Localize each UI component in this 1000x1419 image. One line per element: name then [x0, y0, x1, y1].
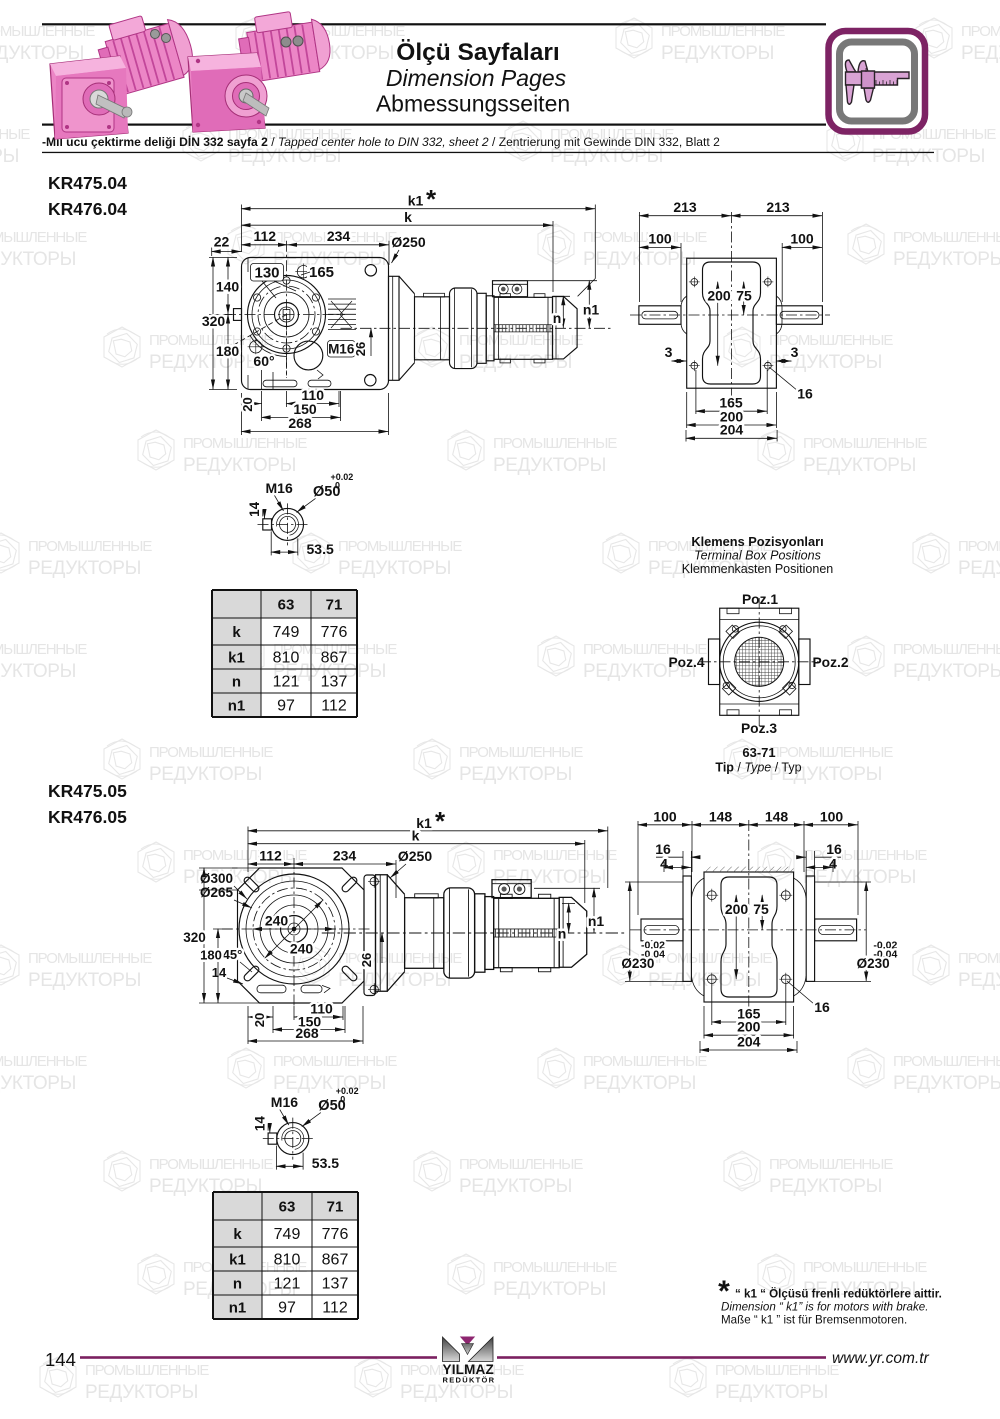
- svg-text:n: n: [558, 926, 567, 942]
- svg-text:*: *: [435, 806, 446, 836]
- svg-text:180: 180: [200, 948, 222, 963]
- svg-text:63-71: 63-71: [742, 745, 775, 760]
- svg-text:140: 140: [216, 278, 240, 294]
- svg-text:20: 20: [252, 1013, 267, 1027]
- svg-text:60°: 60°: [253, 353, 274, 369]
- svg-text:n1: n1: [583, 302, 600, 318]
- svg-text:20: 20: [240, 397, 255, 411]
- svg-text:144: 144: [45, 1349, 76, 1370]
- svg-text:320: 320: [183, 930, 206, 945]
- svg-text:Poz.1: Poz.1: [742, 592, 778, 607]
- svg-text:213: 213: [766, 199, 790, 215]
- svg-text:*: *: [426, 184, 437, 214]
- svg-text:Poz.3: Poz.3: [741, 721, 777, 736]
- svg-text:Maße “ k1 ” ist für Bremsenmot: Maße “ k1 ” ist für Bremsenmotoren.: [721, 1314, 907, 1327]
- svg-text:148: 148: [709, 809, 733, 825]
- svg-text:Abmessungsseiten: Abmessungsseiten: [376, 91, 570, 117]
- svg-text:Tip / Type / Typ: Tip / Type / Typ: [715, 761, 801, 775]
- svg-text:234: 234: [333, 848, 357, 864]
- svg-text:n: n: [553, 310, 562, 326]
- svg-text:“ k1 “ Ölçüsü frenli redüktörl: “ k1 “ Ölçüsü frenli redüktörlere aittir…: [735, 1288, 942, 1301]
- svg-text:16: 16: [797, 386, 813, 402]
- svg-text:Terminal Box Positions: Terminal Box Positions: [694, 549, 821, 563]
- svg-text:130: 130: [254, 265, 279, 282]
- svg-text:Ø230: Ø230: [857, 956, 890, 971]
- svg-text:112: 112: [259, 848, 282, 864]
- svg-text:3: 3: [665, 344, 673, 360]
- svg-text:k: k: [412, 828, 420, 844]
- svg-text:100: 100: [648, 231, 672, 247]
- svg-text:100: 100: [790, 231, 814, 247]
- svg-text:14: 14: [212, 965, 227, 980]
- svg-text:148: 148: [765, 809, 789, 825]
- svg-text:320: 320: [202, 313, 226, 329]
- svg-text:75: 75: [753, 901, 769, 917]
- svg-text:3: 3: [791, 344, 799, 360]
- svg-text:204: 204: [737, 1033, 761, 1049]
- svg-text:16: 16: [814, 999, 830, 1015]
- svg-text:Ø300: Ø300: [200, 871, 233, 886]
- svg-text:165: 165: [309, 264, 334, 281]
- svg-text:234: 234: [327, 228, 351, 244]
- svg-text:Klemmenkasten Positionen: Klemmenkasten Positionen: [682, 562, 834, 576]
- svg-text:www.yr.com.tr: www.yr.com.tr: [832, 1350, 930, 1367]
- svg-text:200: 200: [737, 1019, 761, 1035]
- svg-text:KR475.05: KR475.05: [48, 781, 127, 801]
- svg-text:KR476.04: KR476.04: [48, 199, 127, 219]
- svg-text:n1: n1: [588, 913, 605, 929]
- svg-text:REDÜKTÖR: REDÜKTÖR: [443, 1376, 496, 1385]
- svg-text:Ø230: Ø230: [621, 956, 654, 971]
- svg-text:Dimension Pages: Dimension Pages: [386, 65, 567, 91]
- svg-text:k1: k1: [408, 193, 424, 209]
- svg-text:Poz.2: Poz.2: [812, 655, 848, 670]
- svg-text:75: 75: [736, 288, 752, 304]
- svg-text:180: 180: [216, 343, 240, 359]
- svg-text:240: 240: [290, 941, 314, 957]
- svg-text:-Mil ucu çektirme deliği DİN 3: -Mil ucu çektirme deliği DİN 332 sayfa 2…: [42, 134, 720, 149]
- svg-text:26: 26: [353, 342, 368, 356]
- svg-text:112: 112: [254, 228, 277, 244]
- svg-text:Klemens Pozisyonları: Klemens Pozisyonları: [691, 534, 823, 549]
- svg-text:Ø250: Ø250: [398, 848, 432, 864]
- svg-text:26: 26: [359, 953, 374, 967]
- svg-text:Poz.4: Poz.4: [668, 655, 704, 670]
- svg-text:M16: M16: [328, 342, 355, 357]
- svg-text:200: 200: [707, 288, 731, 304]
- svg-text:200: 200: [725, 901, 749, 917]
- svg-text:Ölçü Sayfaları: Ölçü Sayfaları: [396, 39, 559, 66]
- svg-text:268: 268: [288, 415, 312, 431]
- svg-text:100: 100: [820, 809, 844, 825]
- svg-text:KR475.04: KR475.04: [48, 173, 127, 193]
- svg-text:Dimension “ k1” is for motors: Dimension “ k1” is for motors with brake…: [721, 1301, 928, 1314]
- svg-text:100: 100: [653, 809, 677, 825]
- svg-text:Ø265: Ø265: [200, 885, 234, 900]
- svg-text:213: 213: [673, 199, 697, 215]
- svg-text:240: 240: [265, 913, 289, 929]
- svg-text:268: 268: [295, 1025, 319, 1041]
- svg-text:22: 22: [214, 234, 230, 250]
- svg-text:45°: 45°: [223, 947, 243, 962]
- svg-text:Ø250: Ø250: [391, 234, 425, 250]
- svg-text:k: k: [404, 209, 412, 225]
- svg-text:204: 204: [720, 422, 744, 438]
- svg-text:KR476.05: KR476.05: [48, 807, 127, 827]
